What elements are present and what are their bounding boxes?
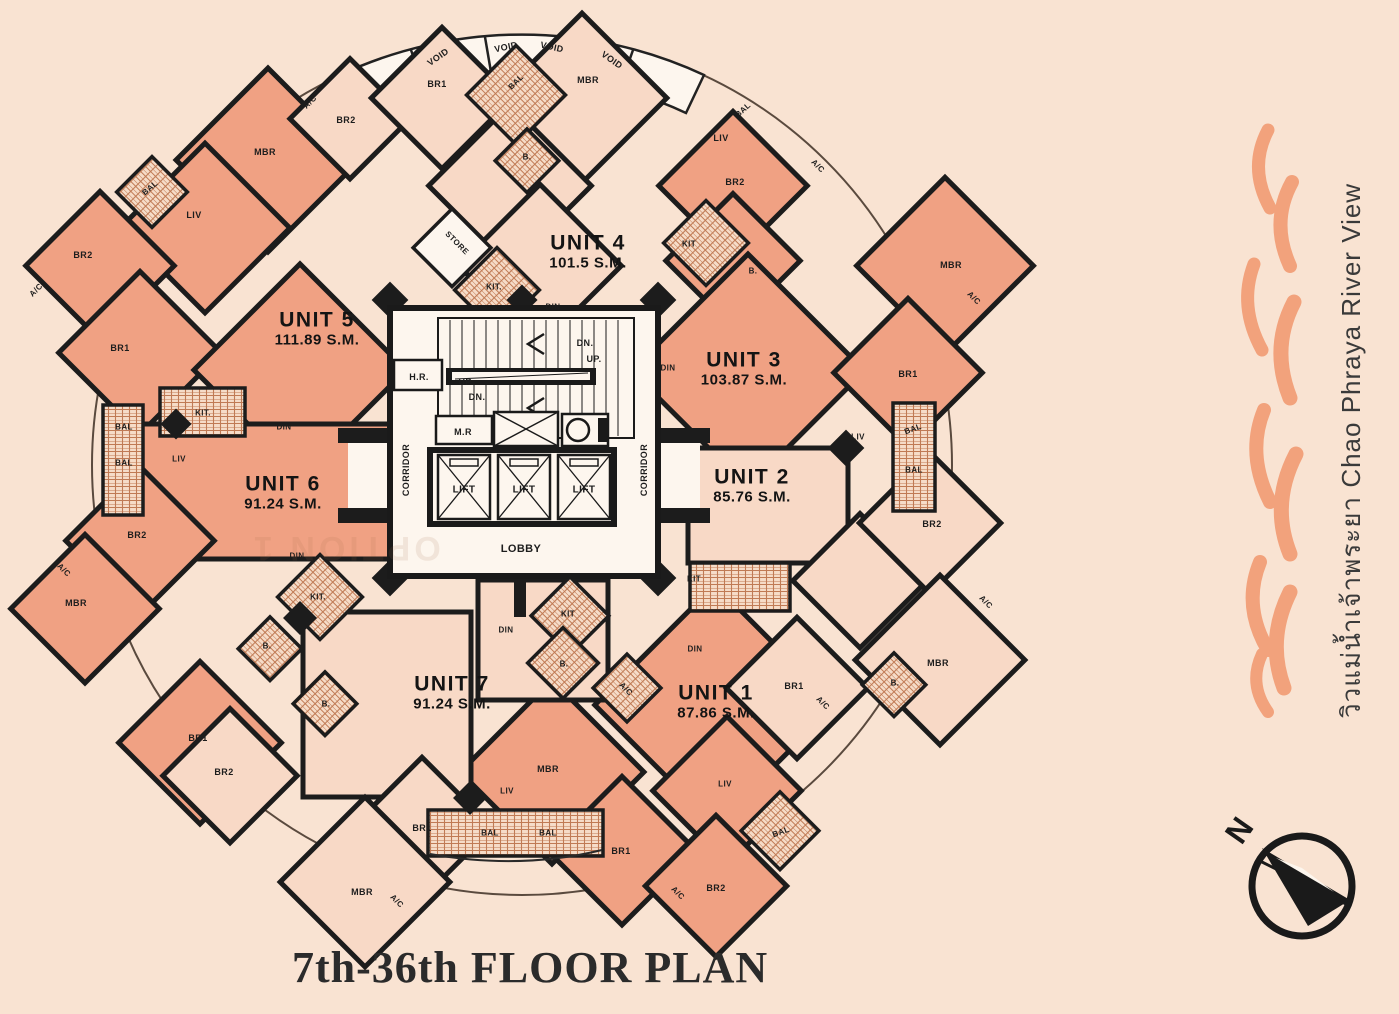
flame-wave-decoration [1248,130,1296,712]
compass-needle [1262,848,1350,926]
compass [1252,836,1352,936]
river-view-caption: วิวแม่น้ำเจ้าพระยา Chao Phraya River Vie… [1330,118,1371,718]
floor-plan-page: VOIDVOIDVOIDVOIDBR1MBRBALB.A/CBR2MBRBALL… [0,0,1399,1014]
page-title: 7th-36th FLOOR PLAN [292,942,768,993]
mr-room [436,416,492,444]
floor-plan-drawing [0,0,1399,1014]
hr-room [394,360,442,390]
watermark: OPTION 1 [250,528,441,567]
